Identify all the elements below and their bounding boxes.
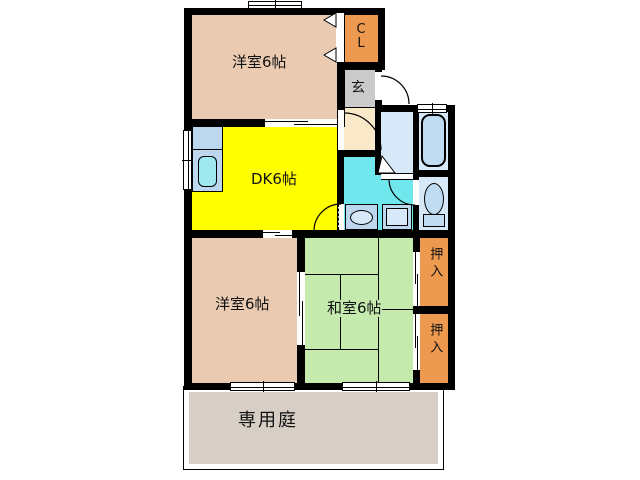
wall-bottom — [184, 383, 455, 390]
kitchen-counter — [192, 126, 223, 192]
label-dk: DK6帖 — [251, 171, 297, 188]
toilet-base — [423, 214, 445, 227]
wall-genkan-right-a — [375, 63, 382, 72]
kitchen-counter-divider — [193, 149, 222, 150]
kitchen-sink — [198, 156, 217, 187]
wall-left — [184, 8, 192, 390]
tatami-line — [305, 274, 378, 275]
label-oshiire-bottom: 押入 — [427, 323, 441, 357]
bath-threshold — [381, 173, 413, 180]
window-washitsu — [342, 382, 410, 391]
washroom-door-opening — [338, 204, 344, 230]
front-door-arc — [381, 76, 409, 104]
toilet-door-opening — [413, 180, 419, 205]
washstand-basin — [350, 210, 373, 225]
label-bedroom-top: 洋室6帖 — [232, 54, 287, 71]
sliding-door-dk-bed2 — [263, 230, 292, 238]
window-kitchen — [183, 130, 192, 190]
floorplan-canvas: 洋室6帖 DK6帖 洋室6帖 和室6帖 C L 玄 押入 押入 専用庭 — [0, 0, 640, 480]
room-hallway — [344, 108, 375, 150]
window-top — [248, 1, 302, 9]
bathtub — [421, 114, 446, 167]
hallway-door-opening — [338, 110, 344, 150]
washstand — [345, 204, 378, 230]
sliding-door-bed2-washitsu — [297, 272, 305, 345]
label-washitsu: 和室6帖 — [327, 300, 382, 317]
tatami-line — [305, 349, 378, 350]
label-oshiire-top: 押入 — [427, 247, 441, 281]
wall-right — [448, 105, 455, 390]
wall-oshiire-chunk-bottom — [413, 370, 420, 383]
wall-top — [184, 8, 385, 15]
wall-cl-right — [378, 8, 385, 63]
label-bedroom-bottom: 洋室6帖 — [215, 296, 270, 313]
toilet-bowl — [424, 183, 444, 215]
wall-bath-divider — [413, 112, 419, 175]
wall-middle — [184, 230, 455, 238]
tatami-line — [378, 309, 414, 310]
window-bedroom-bottom — [230, 382, 295, 391]
wall-oshiire-chunk-top — [413, 238, 420, 252]
sliding-door-bed1-dk — [265, 119, 337, 127]
sliding-door-oshiire-top — [413, 252, 420, 306]
label-cl-line2: L — [352, 37, 370, 51]
window-bath — [417, 104, 447, 113]
washing-machine — [386, 208, 408, 226]
washing-machine-pan — [382, 204, 412, 230]
label-genkan: 玄 — [351, 81, 365, 96]
label-cl: C L — [352, 23, 370, 52]
front-door-opening — [375, 72, 382, 100]
wall-oshiire-divider — [413, 306, 455, 314]
wall-bath-toilet — [413, 170, 455, 177]
sliding-door-oshiire-bottom — [413, 314, 420, 370]
label-cl-line1: C — [352, 23, 370, 37]
cl-door-opening — [336, 13, 344, 62]
wall-hall-bath — [375, 107, 381, 175]
garden-area — [189, 392, 438, 464]
label-garden: 専用庭 — [238, 411, 298, 431]
room-bath-washing — [381, 112, 413, 173]
